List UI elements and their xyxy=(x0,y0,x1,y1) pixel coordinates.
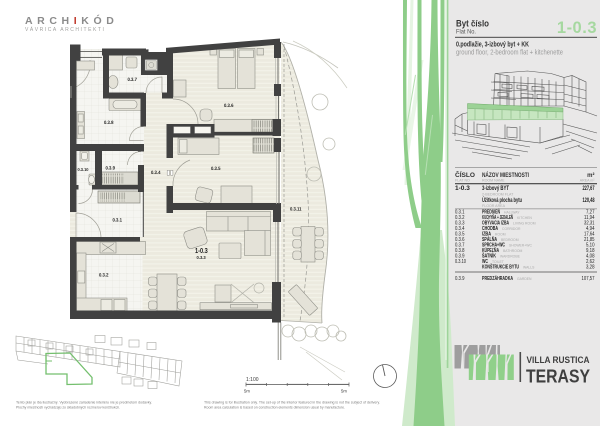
svg-text:3,28: 3,28 xyxy=(586,264,595,270)
svg-text:1:100: 1:100 xyxy=(246,377,259,383)
svg-text:0.3.3: 0.3.3 xyxy=(197,255,207,260)
svg-text:KITCHEN: KITCHEN xyxy=(517,216,532,220)
svg-text:BEDROOM: BEDROOM xyxy=(501,238,519,242)
svg-text:0.3.6: 0.3.6 xyxy=(224,103,234,109)
svg-text:2-BEDROOM FLAT: 2-BEDROOM FLAT xyxy=(482,193,514,197)
svg-text:Flat No.: Flat No. xyxy=(456,29,476,36)
svg-text:Úžitková plocha bytu: Úžitková plocha bytu xyxy=(482,195,522,204)
svg-text:107,57: 107,57 xyxy=(582,276,595,282)
svg-text:0.3.9: 0.3.9 xyxy=(106,166,116,172)
svg-text:SHOWER+WC: SHOWER+WC xyxy=(509,244,532,248)
svg-text:TERASY: TERASY xyxy=(526,367,590,387)
svg-text:WARDROBE: WARDROBE xyxy=(500,255,521,259)
svg-text:120,48: 120,48 xyxy=(583,197,595,204)
svg-text:Plochy miestností vychádzajú z: Plochy miestností vychádzajú zo skladobn… xyxy=(16,406,120,410)
svg-text:0.3.9: 0.3.9 xyxy=(455,276,465,282)
svg-text:0.3.7: 0.3.7 xyxy=(128,77,138,83)
svg-text:KONŠTRUKCIE BYTU: KONŠTRUKCIE BYTU xyxy=(482,262,519,270)
svg-text:AREA m²: AREA m² xyxy=(580,179,596,183)
svg-text:BATHROOM: BATHROOM xyxy=(503,249,523,253)
svg-text:0.3.8: 0.3.8 xyxy=(104,120,114,126)
svg-text:Tento plán je iba ilustračný.: Tento plán je iba ilustračný. Vyobrazené… xyxy=(16,401,152,405)
svg-text:ARCHIKÓD: ARCHIKÓD xyxy=(25,14,118,27)
svg-text:1-0.3: 1-0.3 xyxy=(557,19,597,37)
svg-text:GARDEN: GARDEN xyxy=(517,277,532,281)
svg-text:5m: 5m xyxy=(244,389,250,394)
svg-text:1-0.3: 1-0.3 xyxy=(195,248,208,255)
svg-text:0.3.10: 0.3.10 xyxy=(455,259,466,265)
svg-text:0.3.11: 0.3.11 xyxy=(290,207,302,213)
svg-text:3-izbový BYT: 3-izbový BYT xyxy=(482,185,509,192)
svg-text:ROOM NAME: ROOM NAME xyxy=(482,179,505,183)
svg-text:Room area calculation is based: Room area calculation is based on constr… xyxy=(204,406,345,410)
svg-text:FLAT NO: FLAT NO xyxy=(455,179,470,183)
svg-text:ground floor, 2-bedroom flat +: ground floor, 2-bedroom flat + kitchenet… xyxy=(456,48,563,57)
svg-text:PREDZÁHRADKA: PREDZÁHRADKA xyxy=(482,275,513,282)
svg-text:0.3.10: 0.3.10 xyxy=(78,167,90,172)
svg-text:LIVING ROOM: LIVING ROOM xyxy=(513,222,536,226)
svg-text:0.3.2: 0.3.2 xyxy=(99,273,109,279)
svg-text:VILLA RUSTICA: VILLA RUSTICA xyxy=(527,355,590,366)
svg-text:5m: 5m xyxy=(341,389,347,394)
svg-text:1-0.3: 1-0.3 xyxy=(455,185,470,192)
svg-text:CORRIDOR: CORRIDOR xyxy=(502,227,521,231)
svg-text:0.3.1: 0.3.1 xyxy=(113,218,123,224)
svg-text:0.3.5: 0.3.5 xyxy=(211,166,221,172)
svg-text:FLOOR AREA: FLOOR AREA xyxy=(482,204,506,208)
svg-text:ROOM: ROOM xyxy=(495,233,506,237)
svg-text:WALLS: WALLS xyxy=(523,265,535,269)
svg-text:This drawing is for illustrati: This drawing is for illustration only. T… xyxy=(204,401,380,405)
svg-text:0.3.4: 0.3.4 xyxy=(151,170,161,176)
svg-text:HALLWAY: HALLWAY xyxy=(504,211,520,215)
svg-text:227,67: 227,67 xyxy=(583,185,595,192)
svg-text:VÁVRICA ARCHITEKTI: VÁVRICA ARCHITEKTI xyxy=(25,26,105,33)
